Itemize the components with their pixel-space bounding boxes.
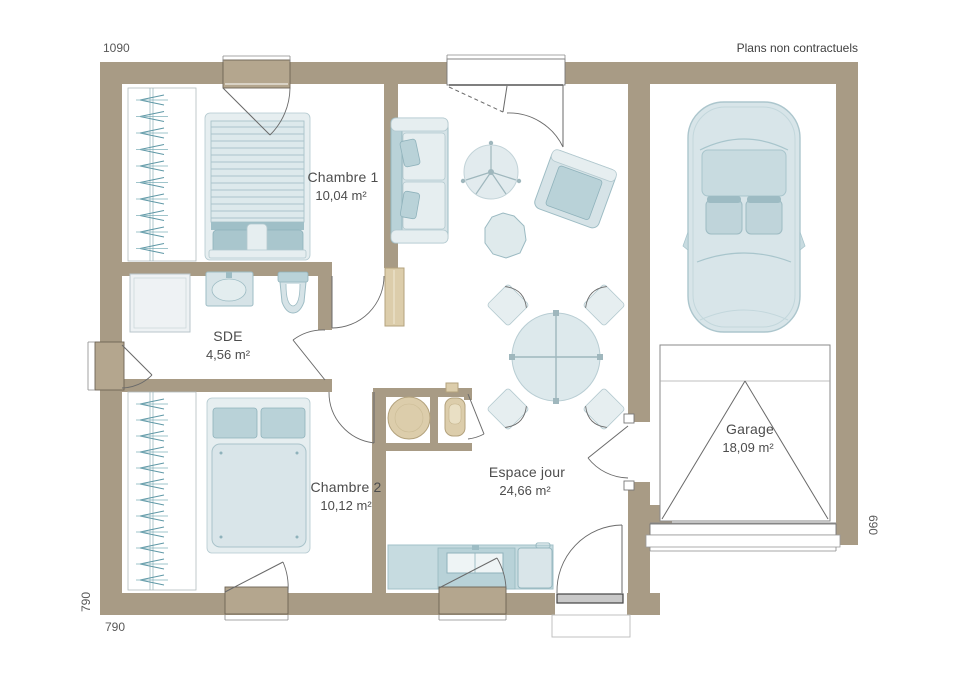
dining-chair <box>581 388 625 432</box>
room-area-chambre-2: 10,12 m² <box>320 498 372 513</box>
hall-wardrobe <box>385 268 404 326</box>
closet-chambre-2 <box>128 392 196 590</box>
toilet-sde <box>278 272 308 313</box>
room-area-sde: 4,56 m² <box>206 347 251 362</box>
garage-door <box>650 524 836 535</box>
wall-right-garage <box>836 62 858 545</box>
wall-sde-bottom <box>122 379 332 392</box>
glazed-door <box>552 525 630 637</box>
faucet <box>472 545 479 550</box>
bed-chambre-2 <box>207 398 310 553</box>
dim-bottom: 790 <box>105 620 125 634</box>
appliance <box>518 548 552 588</box>
washbasin <box>206 272 253 306</box>
wall-left <box>100 62 122 615</box>
dim-right: 690 <box>866 515 880 535</box>
car-seat <box>746 200 782 234</box>
wall-wc-mid <box>430 397 438 447</box>
door-wc <box>468 394 484 439</box>
wall-sde-right <box>318 262 332 334</box>
pouf <box>485 213 526 258</box>
sofa <box>391 118 448 243</box>
room-label-espace-jour: Espace jour <box>489 464 565 480</box>
dining-chair <box>581 282 625 326</box>
wall-wc-bottom <box>373 443 472 451</box>
pedestal-table <box>461 141 521 199</box>
entry-door <box>447 59 565 147</box>
closet-chambre-1 <box>128 88 196 261</box>
dim-top: 1090 <box>103 41 130 55</box>
car <box>683 102 805 332</box>
kitchen-counter <box>388 543 553 589</box>
room-label-garage: Garage <box>726 421 774 437</box>
room-label-chambre-2: Chambre 2 <box>310 479 381 495</box>
dining-chair <box>487 282 531 326</box>
room-label-sde: SDE <box>213 328 242 344</box>
water-heater <box>388 397 430 439</box>
room-area-garage: 18,09 m² <box>722 440 774 455</box>
pillow <box>261 408 305 438</box>
entry-door-left-leaf <box>449 87 503 112</box>
room-area-chambre-1: 10,04 m² <box>315 188 367 203</box>
pillow <box>213 408 257 438</box>
car-mirror <box>800 232 805 250</box>
door-chambre-1 <box>332 262 384 328</box>
dining-table <box>487 282 625 431</box>
car-mirror <box>683 232 688 250</box>
car-seat <box>706 200 742 234</box>
door-wc-leaf <box>468 394 484 434</box>
armchair <box>533 148 618 230</box>
door-sde <box>293 330 332 380</box>
wall-house-garage <box>628 84 650 593</box>
shower <box>130 274 190 332</box>
room-label-chambre-1: Chambre 1 <box>307 169 378 185</box>
window-chambre-2 <box>225 562 288 614</box>
floor-plan: 1090 Plans non contractuels 790 790 690 … <box>0 0 960 678</box>
door-chambre-2 <box>329 379 374 443</box>
dim-left: 790 <box>79 592 93 612</box>
car-roof <box>702 150 786 196</box>
dining-chair <box>487 388 531 432</box>
floor-plan-canvas: 1090 Plans non contractuels 790 790 690 … <box>0 0 960 678</box>
bed-chambre-1 <box>205 113 310 260</box>
room-area-espace-jour: 24,66 m² <box>499 483 551 498</box>
door-garage-leaf <box>588 426 628 458</box>
disclaimer-label: Plans non contractuels <box>737 41 858 55</box>
